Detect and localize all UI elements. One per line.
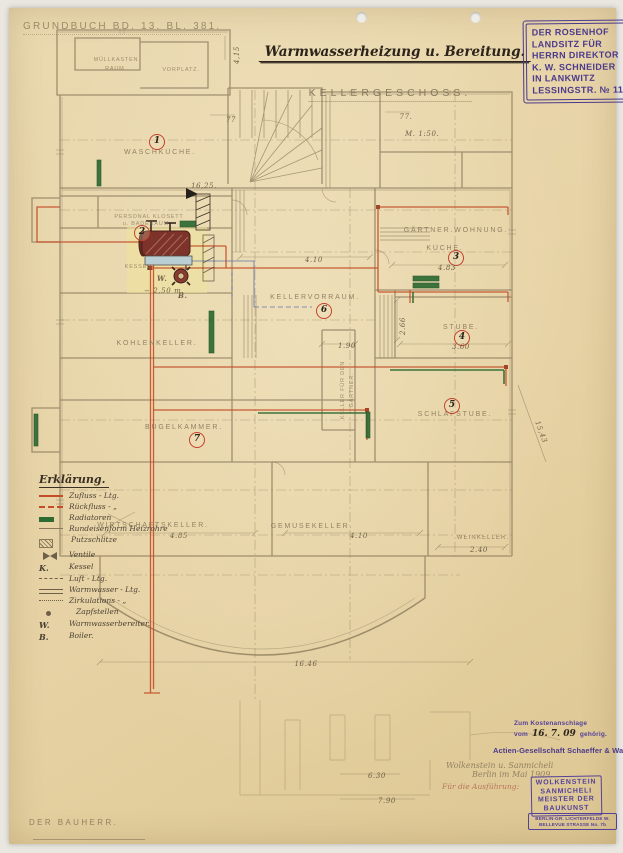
room-number-1: 1 xyxy=(149,134,165,150)
room-label-vorplatz: VORPLATZ. xyxy=(162,67,199,73)
estate-stamp-line: HERRN DIREKTOR xyxy=(532,50,623,62)
legend-text: Warmwasserbereiter. xyxy=(69,620,150,629)
sheet-title: Warmwasserheizung u. Bereitung. xyxy=(259,44,531,62)
dim-415: 4,15 xyxy=(233,46,241,64)
radiators-layer xyxy=(34,160,504,446)
legend-row: Warmwasser - Ltg. xyxy=(39,586,177,595)
dim-stube-h: 2.66 xyxy=(399,317,407,335)
legend-text: Kessel xyxy=(69,563,93,572)
dim-630: 6.30 xyxy=(368,772,386,780)
wall-chase-symbol xyxy=(39,539,53,548)
punch-hole xyxy=(470,12,481,23)
legend-text: Zirkulations - „ xyxy=(69,597,126,606)
legend-row: B. Boiler. xyxy=(39,632,177,642)
legend-row: Zapfstellen xyxy=(39,608,177,617)
address-stamp: BERLIN-GR. LICHTERFELDE W. BELLEVUE STRA… xyxy=(528,813,617,830)
room-label-klosett: PERSONAL KLOSETT xyxy=(114,214,183,220)
room-number-5: 5 xyxy=(444,398,460,414)
architect-stamp: WOLKENSTEIN SANMICHELI MEISTER DER BAUKU… xyxy=(531,775,602,816)
legend-text: Putzschlitze xyxy=(71,536,117,545)
legend-row: Luft - Ltg. xyxy=(39,575,177,584)
estate-stamp-line: LANDSITZ FÜR xyxy=(532,38,623,50)
cost-stamp-vom: vom xyxy=(514,731,528,740)
owner-signature-line xyxy=(33,839,145,840)
legend-row: Ventile xyxy=(39,551,177,560)
level-note-1625: 16,25. xyxy=(191,182,217,190)
legend-row: Putzschlitze xyxy=(39,536,177,548)
legend-row: Rückfluss - „ xyxy=(39,503,177,512)
air-line-symbol xyxy=(39,578,63,579)
room-label-kessel: KESSEL. xyxy=(125,264,154,270)
legend-text: Zufluss - Ltg. xyxy=(69,492,119,501)
dim-kueche: 4.83 xyxy=(438,264,456,272)
room-number-6: 6 xyxy=(316,303,332,319)
legend-text: Rundeisenform Heizrohre xyxy=(69,525,168,534)
dim-77b: 77. xyxy=(400,113,413,121)
floor-label: KELLERGESCHOSS. xyxy=(309,87,472,102)
dim-1646: 16.46 xyxy=(294,660,317,668)
drawing-sheet: GRUNDBUCH BD. 13. BL. 381. Warmwasserhei… xyxy=(9,8,616,844)
legend-text: Ventile xyxy=(69,551,95,560)
heating-pipe-symbol xyxy=(39,528,63,529)
cost-stamp-date: 16. 7. 09 xyxy=(532,729,576,739)
legend-row: Rundeisenform Heizrohre xyxy=(39,525,177,534)
legend-text: Rückfluss - „ xyxy=(69,503,117,512)
legend: Erklärung. Zufluss - Ltg. Rückfluss - „ … xyxy=(39,470,177,645)
owner-signature-label: DER BAUHERR. xyxy=(29,818,118,827)
hot-water-line-symbol xyxy=(39,589,63,594)
room-label-muellkasten2: RAUM. xyxy=(105,66,127,72)
legend-row: Zufluss - Ltg. xyxy=(39,492,177,501)
dim-gaertnerkeller: 1.90 xyxy=(338,342,356,350)
address-stamp-line: BERLIN-GR. LICHTERFELDE W. xyxy=(535,816,610,822)
legend-text: Boiler. xyxy=(69,632,93,641)
legend-text: Warmwasser - Ltg. xyxy=(69,586,140,595)
room-label-kohlenkeller: KOHLENKELLER. xyxy=(117,340,198,347)
radiator-symbol xyxy=(39,517,54,522)
stair-group xyxy=(240,90,322,182)
room-label-muellkasten: MÜLLKASTEN xyxy=(94,57,139,63)
room-label-gaertnerkeller: KELLER FÜR DEN xyxy=(340,361,346,419)
cost-stamp-gehoerig: gehörig. xyxy=(580,731,607,740)
legend-row: Zirkulations - „ xyxy=(39,597,177,606)
legend-text: Radiatoren xyxy=(69,514,111,523)
valve-symbol xyxy=(39,552,63,560)
legend-row: Radiatoren xyxy=(39,514,177,523)
grundbuch-note: GRUNDBUCH BD. 13. BL. 381. xyxy=(23,21,221,35)
firm-stamp-line: Actien-Gesellschaft Schaeffer & Walcker xyxy=(493,746,623,755)
estate-stamp-line: DER ROSENHOF xyxy=(532,27,623,39)
dim-790: 7.90 xyxy=(378,797,396,805)
address-stamp-line: BELLEVUE STRASSE No. 7b xyxy=(535,822,610,828)
legend-text: Zapfstellen xyxy=(76,608,119,617)
estate-stamp-line: K. W. SCHNEIDER xyxy=(532,61,623,73)
architect-stamp-line: WOLKENSTEIN xyxy=(536,778,597,788)
dim-gemuese: 4.10 xyxy=(350,532,368,540)
legend-row: W. Warmwasserbereiter. xyxy=(39,620,177,630)
legend-row: K. Kessel xyxy=(39,563,177,573)
supply-line-symbol xyxy=(39,495,63,497)
room-label-gaertnerwohnung: GÄRTNER.WOHNUNG. xyxy=(404,227,509,234)
handwritten-red-note: Für die Ausführung: xyxy=(442,782,519,791)
kessel-letter-symbol: K. xyxy=(39,563,63,573)
cost-stamp-line1: Zum Kostenanschlage xyxy=(514,720,607,729)
room-label-weinkeller: WEINKELLER. xyxy=(457,535,509,541)
scale-note: M. 1:50. xyxy=(405,130,439,138)
room-number-2: 2 xyxy=(134,225,150,241)
estate-stamp: DER ROSENHOF LANDSITZ FÜR HERRN DIREKTOR… xyxy=(523,19,623,103)
floor-plan-drawing xyxy=(9,8,616,844)
heater-letter: W. xyxy=(157,274,167,283)
dim-wein: 2.40 xyxy=(470,546,488,554)
dim-77a: 77 xyxy=(226,116,236,124)
cost-estimate-stamp: Zum Kostenanschlage vom 16. 7. 09 gehöri… xyxy=(514,720,607,739)
room-label-waschkueche: WASCHKÜCHE. xyxy=(124,149,196,156)
legend-text: Luft - Ltg. xyxy=(69,575,107,584)
heater-letter-symbol: W. xyxy=(39,620,63,630)
estate-stamp-line: IN LANKWITZ xyxy=(532,73,623,85)
estate-stamp-line: LESSINGSTR. № 11 xyxy=(532,84,623,96)
tap-point-symbol xyxy=(46,611,51,616)
room-label-gemuesekeller: GEMÜSEKELLER. xyxy=(271,523,354,530)
room-label-vorraum: KELLERVORRAUM. xyxy=(270,294,360,301)
legend-title: Erklärung. xyxy=(39,473,109,488)
boiler-letter-symbol: B. xyxy=(39,632,63,642)
return-line-symbol xyxy=(39,506,63,508)
circulation-line-symbol xyxy=(39,600,63,601)
architect-stamp-line: MEISTER DER xyxy=(536,795,597,805)
boiler-letter: B. xyxy=(178,291,188,300)
punch-hole xyxy=(356,12,367,23)
room-label-gaertnerkeller2: GÄRTNER. xyxy=(349,373,355,408)
dim-stube-w: 3.60 xyxy=(452,343,470,351)
room-number-7: 7 xyxy=(189,432,205,448)
handwritten-signature-1: Wolkenstein u. Sanmicheli xyxy=(446,761,553,770)
room-label-buegelkammer: BÜGELKAMMER. xyxy=(145,424,223,431)
dim-vorraum: 4.10 xyxy=(305,256,323,264)
